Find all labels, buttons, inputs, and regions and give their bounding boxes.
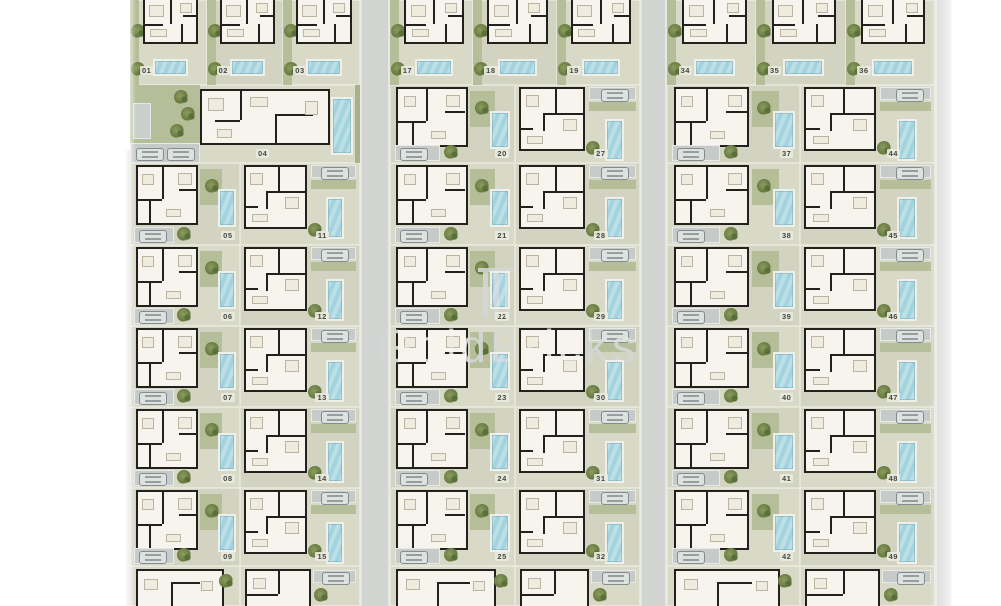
swimming-pool bbox=[490, 433, 510, 471]
unit-number-label: 49 bbox=[887, 552, 900, 561]
unit-number-label: 39 bbox=[780, 312, 793, 321]
unit-number-label: 17 bbox=[401, 66, 414, 75]
car-icon bbox=[167, 148, 195, 161]
tree-icon bbox=[593, 588, 607, 602]
tree-icon bbox=[757, 342, 771, 356]
car-icon bbox=[896, 411, 924, 424]
floor-plan bbox=[396, 87, 467, 147]
floor-plan bbox=[143, 0, 198, 44]
tree-icon bbox=[757, 101, 771, 115]
driveway bbox=[134, 389, 174, 405]
tree-icon bbox=[724, 548, 738, 562]
car-icon bbox=[601, 492, 629, 505]
villa-plot-44: 44 bbox=[800, 85, 935, 163]
floor-plan bbox=[136, 328, 199, 388]
floor-plan bbox=[674, 409, 750, 469]
swimming-pool bbox=[897, 279, 917, 321]
villa-plot-28: 28 bbox=[515, 163, 640, 245]
unit-number-label: 28 bbox=[594, 231, 607, 240]
villa-plot-24: 24 bbox=[390, 407, 515, 488]
floor-plan bbox=[245, 569, 311, 606]
tree-icon bbox=[724, 145, 738, 159]
car-icon bbox=[897, 572, 925, 585]
villa-plot-02: 02 bbox=[207, 0, 284, 85]
car-icon bbox=[896, 330, 924, 343]
driveway bbox=[311, 409, 357, 422]
villa-plot-34: 34 bbox=[667, 0, 756, 85]
tree-icon bbox=[444, 227, 458, 241]
floor-plan bbox=[487, 0, 547, 44]
villa-plot-42: 42 bbox=[667, 488, 800, 566]
villa-plot-22: 22 bbox=[390, 245, 515, 326]
tree-icon bbox=[724, 389, 738, 403]
car-icon bbox=[677, 230, 705, 243]
car-icon bbox=[677, 392, 705, 405]
car-icon bbox=[321, 330, 349, 343]
floor-plan bbox=[404, 0, 464, 44]
unit-number-label: 19 bbox=[567, 66, 580, 75]
driveway bbox=[311, 328, 357, 341]
villa-plot-05: 05 bbox=[130, 163, 240, 245]
grass-strip bbox=[311, 180, 357, 189]
unit-number-label: 04 bbox=[256, 149, 269, 158]
driveway bbox=[880, 328, 931, 341]
tree-icon bbox=[757, 261, 771, 275]
villa-plot-15: 15 bbox=[240, 488, 360, 566]
driveway bbox=[880, 87, 931, 100]
unit-number-label: 29 bbox=[594, 312, 607, 321]
villa-plot-31: 31 bbox=[515, 407, 640, 488]
driveway bbox=[134, 548, 174, 564]
driveway bbox=[311, 490, 357, 503]
block-right: 34 35 36 bbox=[667, 0, 935, 606]
swimming-pool bbox=[498, 59, 536, 76]
driveway bbox=[880, 247, 931, 260]
swimming-pool bbox=[326, 441, 344, 483]
swimming-pool bbox=[605, 279, 624, 321]
tree-icon bbox=[884, 588, 898, 602]
swimming-pool bbox=[783, 59, 824, 76]
swimming-pool bbox=[490, 111, 510, 149]
villa-plot-18: 18 bbox=[473, 0, 556, 85]
tree-icon bbox=[177, 548, 191, 562]
floor-plan bbox=[396, 569, 496, 606]
grass-strip bbox=[311, 424, 357, 433]
grass-strip bbox=[589, 505, 637, 514]
villa-plot-45: 45 bbox=[800, 163, 935, 245]
driveway bbox=[395, 145, 440, 161]
grass-strip bbox=[880, 424, 931, 433]
floor-plan bbox=[804, 165, 876, 229]
floor-plan bbox=[682, 0, 746, 44]
floor-plan bbox=[296, 0, 351, 44]
swimming-pool bbox=[605, 522, 624, 564]
unit-number-label: 12 bbox=[315, 312, 328, 321]
car-icon bbox=[400, 230, 428, 243]
tree-icon bbox=[205, 179, 219, 193]
swimming-pool bbox=[306, 59, 341, 76]
tree-icon bbox=[444, 145, 458, 159]
floor-plan bbox=[244, 247, 308, 311]
swimming-pool bbox=[218, 271, 236, 309]
car-icon bbox=[601, 167, 629, 180]
unit-number-label: 38 bbox=[780, 231, 793, 240]
swimming-pool bbox=[218, 352, 236, 390]
villa-plot-25: 25 bbox=[390, 488, 515, 566]
villa-plot-09: 09 bbox=[130, 488, 240, 566]
tree-icon bbox=[205, 261, 219, 275]
unit-number-label: 23 bbox=[495, 393, 508, 402]
grass-strip bbox=[589, 262, 637, 271]
driveway bbox=[134, 308, 174, 324]
tree-icon bbox=[177, 227, 191, 241]
car-icon bbox=[601, 249, 629, 262]
street-4 bbox=[935, 0, 952, 606]
swimming-pool bbox=[153, 59, 188, 76]
swimming-pool bbox=[326, 522, 344, 564]
villa-plot-32: 32 bbox=[515, 488, 640, 566]
floor-plan bbox=[519, 328, 585, 392]
unit-number-label: 07 bbox=[221, 393, 234, 402]
villa-plot-11: 11 bbox=[240, 163, 360, 245]
tree-icon bbox=[475, 342, 489, 356]
floor-plan bbox=[772, 0, 836, 44]
tree-icon bbox=[205, 504, 219, 518]
floor-plan bbox=[244, 165, 308, 229]
unit-number-label: 20 bbox=[495, 149, 508, 158]
tree-icon bbox=[724, 470, 738, 484]
villa-plot-30: 30 bbox=[515, 326, 640, 407]
floor-plan bbox=[804, 87, 876, 151]
driveway bbox=[672, 227, 720, 243]
tree-icon bbox=[757, 423, 771, 437]
tree-icon bbox=[475, 261, 489, 275]
tree-icon bbox=[558, 24, 572, 38]
car-icon bbox=[139, 551, 167, 564]
unit-number-label: 05 bbox=[221, 231, 234, 240]
car-icon bbox=[321, 249, 349, 262]
grass-strip bbox=[355, 85, 360, 163]
car-icon bbox=[321, 167, 349, 180]
unit-number-label: 37 bbox=[780, 149, 793, 158]
swimming-pool bbox=[230, 59, 265, 76]
unit-number-label: 15 bbox=[315, 552, 328, 561]
car-icon bbox=[400, 311, 428, 324]
unit-number-label: 40 bbox=[780, 393, 793, 402]
villa-plot-14: 14 bbox=[240, 407, 360, 488]
villa-plot-29: 29 bbox=[515, 245, 640, 326]
car-icon bbox=[400, 148, 428, 161]
tree-icon bbox=[847, 24, 861, 38]
tree-icon bbox=[444, 470, 458, 484]
villa-plot-01: 01 bbox=[130, 0, 207, 85]
car-icon bbox=[896, 89, 924, 102]
swimming-pool bbox=[490, 189, 510, 227]
tree-icon bbox=[177, 389, 191, 403]
floor-plan bbox=[519, 490, 585, 554]
floor-plan bbox=[136, 490, 199, 550]
driveway bbox=[672, 389, 720, 405]
villa-plot-partial bbox=[800, 566, 935, 606]
swimming-pool bbox=[218, 433, 236, 471]
floor-plan bbox=[804, 328, 876, 392]
unit-number-label: 30 bbox=[594, 393, 607, 402]
villa-plot-39: 39 bbox=[667, 245, 800, 326]
swimming-pool bbox=[490, 514, 510, 552]
villa-plot-48: 48 bbox=[800, 407, 935, 488]
villa-plot-46: 46 bbox=[800, 245, 935, 326]
tree-icon bbox=[757, 179, 771, 193]
villa-plot-38: 38 bbox=[667, 163, 800, 245]
floor-plan bbox=[136, 247, 199, 307]
driveway bbox=[395, 548, 440, 564]
car-icon bbox=[677, 551, 705, 564]
unit-number-label: 06 bbox=[221, 312, 234, 321]
grass-strip bbox=[880, 262, 931, 271]
driveway bbox=[672, 145, 720, 161]
unit-number-label: 21 bbox=[495, 231, 508, 240]
grass-strip bbox=[311, 343, 357, 352]
tree-icon bbox=[205, 423, 219, 437]
car-icon bbox=[321, 411, 349, 424]
tree-icon bbox=[219, 574, 233, 588]
car-icon bbox=[136, 148, 164, 161]
villa-plot-13: 13 bbox=[240, 326, 360, 407]
floor-plan bbox=[244, 328, 308, 392]
floor-plan bbox=[804, 247, 876, 311]
car-icon bbox=[139, 473, 167, 486]
swimming-pool bbox=[897, 119, 917, 161]
unit-number-label: 08 bbox=[221, 474, 234, 483]
floor-plan bbox=[396, 490, 467, 550]
car-icon bbox=[896, 249, 924, 262]
villa-plot-19: 19 bbox=[557, 0, 640, 85]
car-icon bbox=[400, 551, 428, 564]
driveway bbox=[589, 247, 637, 260]
villa-plot-07: 07 bbox=[130, 326, 240, 407]
floor-plan bbox=[396, 409, 467, 469]
car-icon bbox=[322, 572, 350, 585]
unit-number-label: 25 bbox=[495, 552, 508, 561]
swimming-pool bbox=[897, 522, 917, 564]
villa-plot-partial bbox=[240, 566, 360, 606]
villa-plot-partial bbox=[667, 566, 800, 606]
car-icon bbox=[677, 311, 705, 324]
swimming-pool bbox=[326, 197, 344, 239]
driveway bbox=[672, 548, 720, 564]
unit-number-label: 01 bbox=[140, 66, 153, 75]
floor-plan bbox=[674, 247, 750, 307]
car-icon bbox=[139, 392, 167, 405]
tree-icon bbox=[494, 574, 508, 588]
driveway bbox=[130, 143, 200, 163]
unit-number-label: 46 bbox=[887, 312, 900, 321]
grass-strip bbox=[589, 424, 637, 433]
swimming-pool bbox=[773, 352, 794, 390]
car-icon bbox=[896, 492, 924, 505]
villa-plot-20: 20 bbox=[390, 85, 515, 163]
site-plan-canvas: 01 02 03 bbox=[0, 0, 1001, 606]
unit-number-label: 44 bbox=[887, 149, 900, 158]
tree-icon bbox=[724, 308, 738, 322]
car-icon bbox=[400, 392, 428, 405]
driveway bbox=[589, 409, 637, 422]
swimming-pool bbox=[872, 59, 913, 76]
unit-number-label: 22 bbox=[495, 312, 508, 321]
swimming-pool bbox=[490, 271, 510, 309]
floor-plan bbox=[519, 409, 585, 473]
floor-plan bbox=[244, 490, 308, 554]
grass-strip bbox=[880, 102, 931, 111]
car-icon bbox=[139, 311, 167, 324]
driveway bbox=[589, 165, 637, 178]
tree-icon bbox=[724, 227, 738, 241]
tree-icon bbox=[177, 470, 191, 484]
car-icon bbox=[139, 230, 167, 243]
street-2 bbox=[360, 0, 390, 606]
swimming-pool bbox=[415, 59, 453, 76]
swimming-pool bbox=[773, 111, 794, 149]
unit-number-label: 47 bbox=[887, 393, 900, 402]
villa-plot-06: 06 bbox=[130, 245, 240, 326]
floor-plan bbox=[396, 247, 467, 307]
tree-icon bbox=[757, 504, 771, 518]
floor-plan bbox=[200, 89, 330, 145]
swimming-pool bbox=[605, 197, 624, 239]
driveway bbox=[672, 308, 720, 324]
tree-icon bbox=[475, 504, 489, 518]
floor-plan bbox=[396, 165, 467, 225]
driveway bbox=[395, 470, 440, 486]
villa-plot-37: 37 bbox=[667, 85, 800, 163]
floor-plan bbox=[804, 409, 876, 473]
car-icon bbox=[896, 167, 924, 180]
tree-icon bbox=[170, 124, 184, 138]
driveway bbox=[882, 570, 931, 583]
car-icon bbox=[601, 89, 629, 102]
unit-number-label: 27 bbox=[594, 149, 607, 158]
swimming-pool bbox=[218, 189, 236, 227]
tree-icon bbox=[174, 90, 188, 104]
unit-number-label: 45 bbox=[887, 231, 900, 240]
tree-icon bbox=[475, 179, 489, 193]
floor-plan bbox=[519, 247, 585, 311]
grass-strip bbox=[589, 180, 637, 189]
floor-plan bbox=[805, 569, 879, 606]
tree-icon bbox=[778, 574, 792, 588]
swimming-pool bbox=[773, 189, 794, 227]
unit-number-label: 03 bbox=[293, 66, 306, 75]
grass-strip bbox=[880, 180, 931, 189]
car-icon bbox=[400, 473, 428, 486]
unit-number-label: 48 bbox=[887, 474, 900, 483]
villa-plot-partial bbox=[130, 566, 240, 606]
unit-number-label: 11 bbox=[316, 231, 329, 240]
driveway bbox=[134, 227, 174, 243]
grass-strip bbox=[880, 505, 931, 514]
unit-number-label: 13 bbox=[315, 393, 328, 402]
unit-number-label: 34 bbox=[679, 66, 692, 75]
swimming-pool bbox=[605, 360, 624, 402]
floor-plan bbox=[136, 569, 224, 606]
villa-plot-47: 47 bbox=[800, 326, 935, 407]
floor-plan bbox=[136, 409, 199, 469]
tree-icon bbox=[181, 107, 195, 121]
tree-icon bbox=[444, 389, 458, 403]
villa-plot-27: 27 bbox=[515, 85, 640, 163]
car-icon bbox=[601, 411, 629, 424]
driveway bbox=[311, 165, 357, 178]
car-icon bbox=[677, 473, 705, 486]
driveway bbox=[880, 165, 931, 178]
villa-plot-23: 23 bbox=[390, 326, 515, 407]
unit-number-label: 02 bbox=[217, 66, 230, 75]
swimming-pool bbox=[773, 271, 794, 309]
unit-number-label: 32 bbox=[594, 552, 607, 561]
villa-plot-36: 36 bbox=[846, 0, 935, 85]
floor-plan bbox=[519, 165, 585, 229]
unit-number-label: 36 bbox=[857, 66, 870, 75]
tree-icon bbox=[391, 24, 405, 38]
swimming-pool bbox=[605, 119, 624, 161]
swimming-pool bbox=[773, 514, 794, 552]
floor-plan bbox=[674, 87, 750, 147]
swimming-pool bbox=[582, 59, 620, 76]
tree-icon bbox=[757, 24, 771, 38]
floor-plan bbox=[674, 569, 780, 606]
villa-plot-partial bbox=[515, 566, 640, 606]
block-middle: 17 18 19 bbox=[390, 0, 640, 606]
grass-strip bbox=[311, 505, 357, 514]
paved-pad bbox=[133, 103, 151, 139]
car-icon bbox=[602, 572, 630, 585]
street-3 bbox=[640, 0, 667, 606]
villa-plot-partial bbox=[390, 566, 515, 606]
block-left: 01 02 03 bbox=[130, 0, 360, 606]
floor-plan bbox=[136, 165, 199, 225]
driveway bbox=[395, 227, 440, 243]
swimming-pool bbox=[218, 514, 236, 552]
tree-icon bbox=[474, 24, 488, 38]
driveway bbox=[134, 470, 174, 486]
unit-number-label: 35 bbox=[768, 66, 781, 75]
floor-plan bbox=[861, 0, 925, 44]
driveway bbox=[672, 470, 720, 486]
floor-plan bbox=[519, 87, 585, 151]
villa-plot-41: 41 bbox=[667, 407, 800, 488]
driveway bbox=[880, 490, 931, 503]
car-icon bbox=[601, 330, 629, 343]
swimming-pool bbox=[331, 97, 353, 155]
driveway bbox=[589, 490, 637, 503]
grass-strip bbox=[880, 343, 931, 352]
driveway bbox=[589, 328, 637, 341]
tree-icon bbox=[177, 308, 191, 322]
floor-plan bbox=[571, 0, 631, 44]
unit-number-label: 42 bbox=[780, 552, 793, 561]
unit-number-label: 18 bbox=[484, 66, 497, 75]
villa-plot-12: 12 bbox=[240, 245, 360, 326]
swimming-pool bbox=[326, 279, 344, 321]
swimming-pool bbox=[326, 360, 344, 402]
villa-plot-49: 49 bbox=[800, 488, 935, 566]
tree-icon bbox=[314, 588, 328, 602]
swimming-pool bbox=[897, 441, 917, 483]
driveway bbox=[880, 409, 931, 422]
grass-strip bbox=[589, 102, 637, 111]
driveway bbox=[313, 570, 356, 583]
villa-plot-21: 21 bbox=[390, 163, 515, 245]
